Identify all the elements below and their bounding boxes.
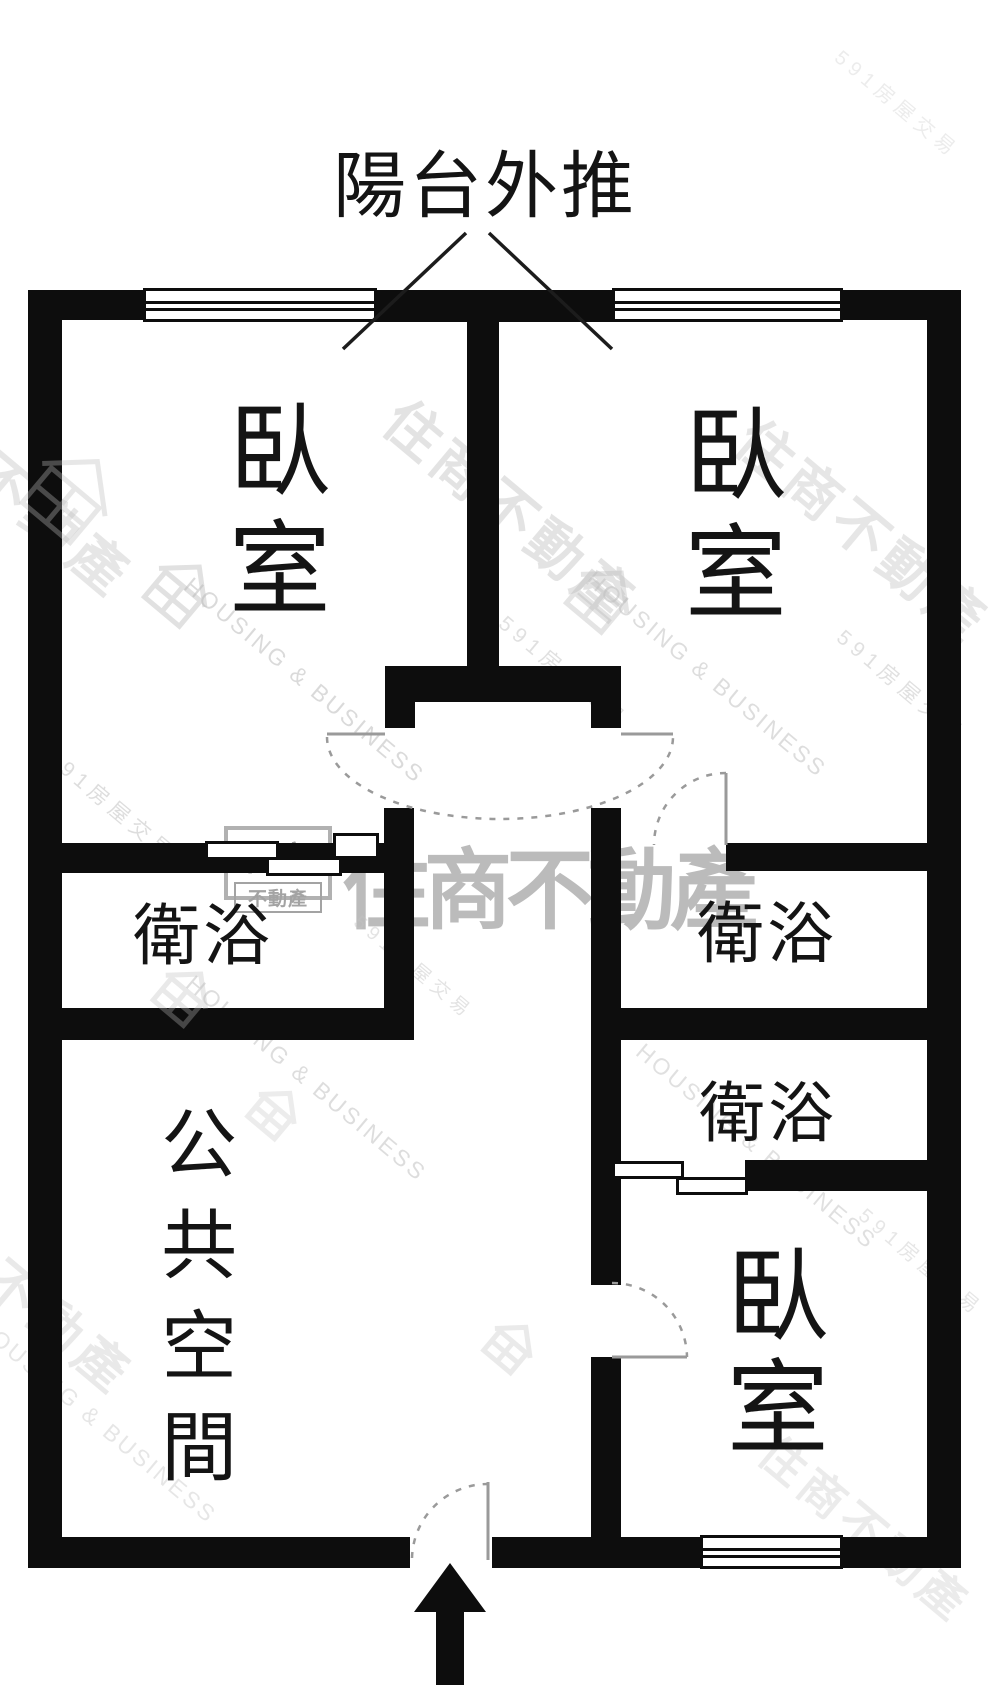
- room-label-bathroom-left: 衛浴: [133, 899, 273, 974]
- room-label-bathroom-right-upper: 衛浴: [697, 897, 837, 972]
- balcony-pushed-out-title: 陽台外推: [333, 146, 637, 228]
- label-layer: 陽台外推 臥室 臥室 臥室 衛浴 衛浴 衛浴 公共空間: [0, 0, 1000, 1707]
- room-label-bedroom-2: 臥室: [670, 401, 784, 637]
- room-label-bedroom-3: 臥室: [712, 1242, 826, 1466]
- room-label-public-space: 公共空間: [149, 1104, 234, 1508]
- room-label-bedroom-1: 臥室: [214, 397, 328, 633]
- floor-plan-canvas: 住商 不動產 住商不動產 住商不動產住商不動產住商不動產住商不動產住商不動產HO…: [0, 0, 1000, 1707]
- room-label-bathroom-right-lower: 衛浴: [699, 1077, 837, 1151]
